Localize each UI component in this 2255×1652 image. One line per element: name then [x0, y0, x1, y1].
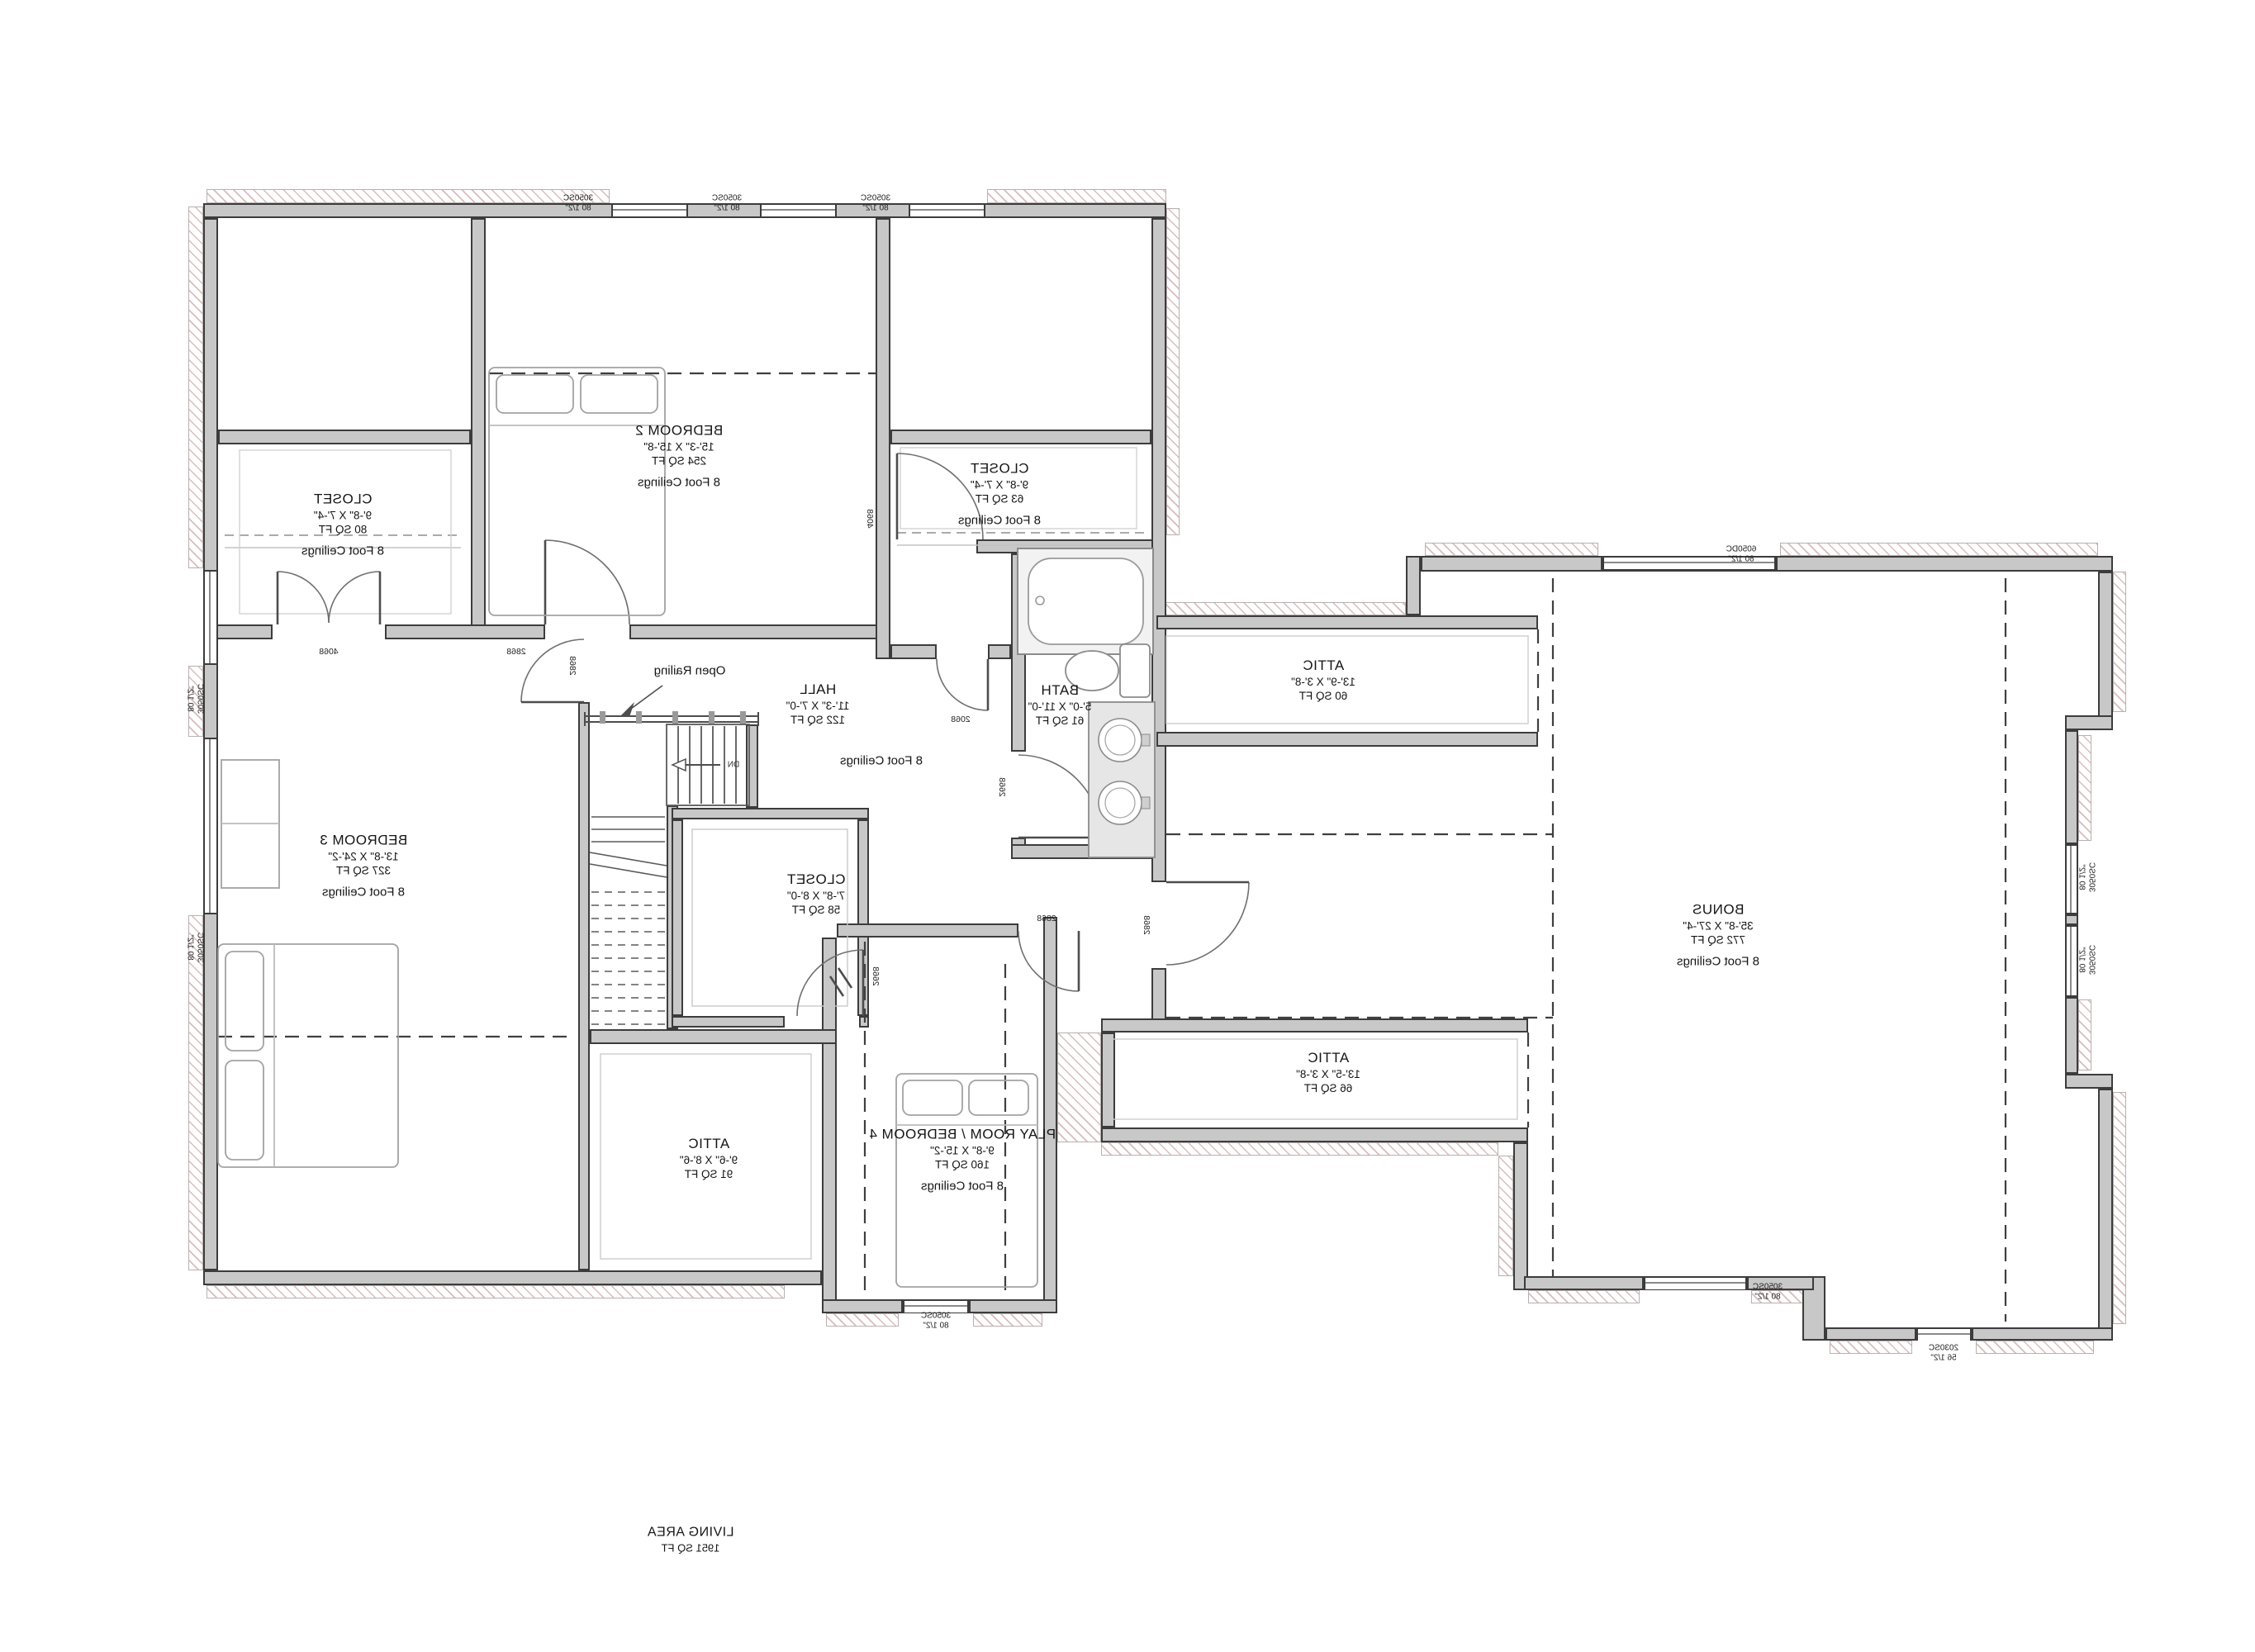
label-attic-left: ATTIC 9'-6" X 8'-6" 91 SQ FT: [680, 1136, 738, 1180]
room-dims: 9'-6" X 8'-6": [680, 1154, 738, 1166]
window-code-left2: 3050SC 80 1/2": [186, 933, 205, 962]
door-code-toilet: 2068: [951, 714, 970, 724]
dn-text: DN: [728, 761, 739, 770]
room-name: ATTIC: [1308, 1050, 1349, 1066]
room-name: ATTIC: [1303, 657, 1344, 674]
floorplan-canvas: BEDROOM 2 15'-3" X 15'-8" 254 SQ FT 8 Fo…: [0, 0, 2255, 1652]
label-dn: DN: [728, 761, 739, 770]
room-area: 772 SQ FT: [1691, 934, 1745, 947]
room-dims: 35'-8" X 27'-4": [1683, 920, 1753, 933]
room-dims: 15'-3" X 15'-8": [643, 441, 714, 453]
door-code-bedroom2: 2868: [506, 647, 525, 657]
window-code-bonus-sw: 3050SC 80 1/2": [1753, 1283, 1783, 1302]
door-code-closet58: 2668: [871, 966, 881, 985]
label-bath: BATH 5'-0" X 11'-0" 61 SQ FT: [1028, 682, 1092, 727]
label-closet-hall: CLOSET 9'-8" X 7'-4" 63 SQ FT 8 Foot Cei…: [958, 461, 1041, 528]
room-name: PLAY ROOM / BEDROOM 4: [869, 1127, 1056, 1143]
label-bedroom3: BEDROOM 3 13'-8" X 24'-2" 327 SQ FT 8 Fo…: [320, 833, 408, 900]
label-bonus: BONUS 35'-8" X 27'-4" 772 SQ FT 8 Foot C…: [1677, 902, 1759, 969]
label-attic-bottom: ATTIC 13'-5" X 3'-8" 66 SQ FT: [1296, 1050, 1360, 1094]
room-dims: 13'-8" X 24'-2": [328, 851, 398, 863]
living-area-label: LIVING AREA: [647, 1526, 733, 1540]
door-code-bedroom3: 2868: [567, 656, 577, 675]
dresser-bedroom3: [221, 760, 279, 888]
window-code-bonus-e2: 3050SC 80 1/2": [2077, 945, 2096, 975]
bathtub: [1018, 548, 1153, 654]
room-area: 66 SQ FT: [1304, 1082, 1353, 1094]
window-code-bonus-n: 6050DC 80 1/2": [1726, 545, 1757, 564]
open-railing-text: Open Railing: [654, 664, 726, 678]
room-name: CLOSET: [313, 491, 372, 508]
label-attic-top: ATTIC 13'-9" X 3'-8" 60 SQ FT: [1291, 657, 1355, 702]
room-area: 58 SQ FT: [792, 904, 841, 916]
room-dims: 7'-8" X 8'-0": [787, 890, 845, 902]
door-code-playroom: 2868: [1037, 914, 1056, 923]
label-closet-bedroom2: CLOSET 9'-8" X 7'-4" 80 SQ FT 8 Foot Cei…: [301, 491, 384, 558]
room-ceiling: 8 Foot Ceilings: [301, 544, 384, 558]
label-living-area: LIVING AREA 1951 SQ FT: [647, 1526, 733, 1555]
window-code-top2: 3050SC 80 1/2": [712, 194, 742, 213]
room-dims: 13'-5" X 3'-8": [1296, 1068, 1360, 1080]
room-name: CLOSET: [786, 871, 845, 888]
stairs-lower: [590, 817, 667, 1024]
room-dims: 11'-3" X 7'-0": [786, 700, 850, 712]
label-hall: HALL 11'-3" X 7'-0" 122 SQ FT: [786, 681, 850, 726]
window-code-top1: 3050SC 80 1/2": [563, 194, 593, 213]
room-dims: 9'-8" X 7'-4": [971, 479, 1028, 491]
room-area: 327 SQ FT: [336, 865, 391, 877]
window-code-top3: 3050SC 80 1/2": [861, 194, 890, 213]
room-name: ATTIC: [688, 1136, 729, 1152]
room-ceiling: 8 Foot Ceilings: [1677, 955, 1759, 969]
window-code-bonus-e1: 3050SC 80 1/2": [2077, 862, 2096, 892]
window-code-left1: 3050SC 80 1/2": [186, 684, 205, 714]
label-hall-ceiling: 8 Foot Ceilings: [840, 754, 923, 768]
room-area: 61 SQ FT: [1036, 714, 1085, 727]
room-ceiling: 8 Foot Ceilings: [322, 885, 405, 900]
living-area-value: 1951 SQ FT: [662, 1542, 720, 1555]
room-ceiling: 8 Foot Ceilings: [921, 1180, 1004, 1194]
room-area: 254 SQ FT: [652, 455, 706, 468]
door-code-french: 4068: [319, 647, 338, 657]
door-code-bath: 2668: [997, 777, 1007, 796]
room-name: BEDROOM 3: [320, 833, 408, 849]
room-area: 60 SQ FT: [1299, 690, 1348, 702]
room-name: HALL: [800, 681, 837, 698]
room-dims: 5'-0" X 11'-0": [1028, 700, 1092, 713]
label-closet58: CLOSET 7'-8" X 8'-0" 58 SQ FT: [786, 871, 845, 916]
room-dims: 9'-8" X 7'-4": [314, 510, 372, 522]
bed-bedroom2: [489, 368, 665, 615]
room-area: 80 SQ FT: [319, 524, 368, 536]
room-dims: 9'-8" X 15'-2": [930, 1145, 995, 1157]
room-name: BONUS: [1692, 902, 1745, 919]
label-playroom: PLAY ROOM / BEDROOM 4 9'-8" X 15'-2" 160…: [869, 1127, 1056, 1194]
room-area: 122 SQ FT: [790, 714, 845, 726]
room-ceiling: 8 Foot Ceilings: [958, 514, 1041, 528]
label-bedroom2: BEDROOM 2 15'-3" X 15'-8" 254 SQ FT 8 Fo…: [635, 423, 724, 490]
floorplan-drawing: [0, 0, 2255, 1652]
room-name: BATH: [1041, 682, 1079, 699]
room-area: 63 SQ FT: [976, 493, 1024, 506]
room-name: CLOSET: [970, 461, 1028, 477]
door-code-bonus: 2868: [1142, 915, 1151, 934]
vanity-sinks: [1089, 702, 1155, 857]
room-ceiling: 8 Foot Ceilings: [840, 754, 923, 768]
window-code-bonus-se: 2030SC 56 1/2": [1929, 1344, 1958, 1363]
room-ceiling: 8 Foot Ceilings: [638, 476, 720, 490]
room-name: BEDROOM 2: [635, 423, 724, 439]
door-code-closet-hall: 4068: [865, 509, 875, 528]
bed-bedroom3: [218, 944, 398, 1167]
room-area: 160 SQ FT: [935, 1159, 990, 1171]
label-open-railing: Open Railing: [654, 664, 726, 678]
window-code-playroom-s: 3050SC 80 1/2": [921, 1312, 951, 1331]
room-dims: 13'-9" X 3'-8": [1291, 676, 1355, 688]
room-area: 91 SQ FT: [685, 1168, 733, 1180]
